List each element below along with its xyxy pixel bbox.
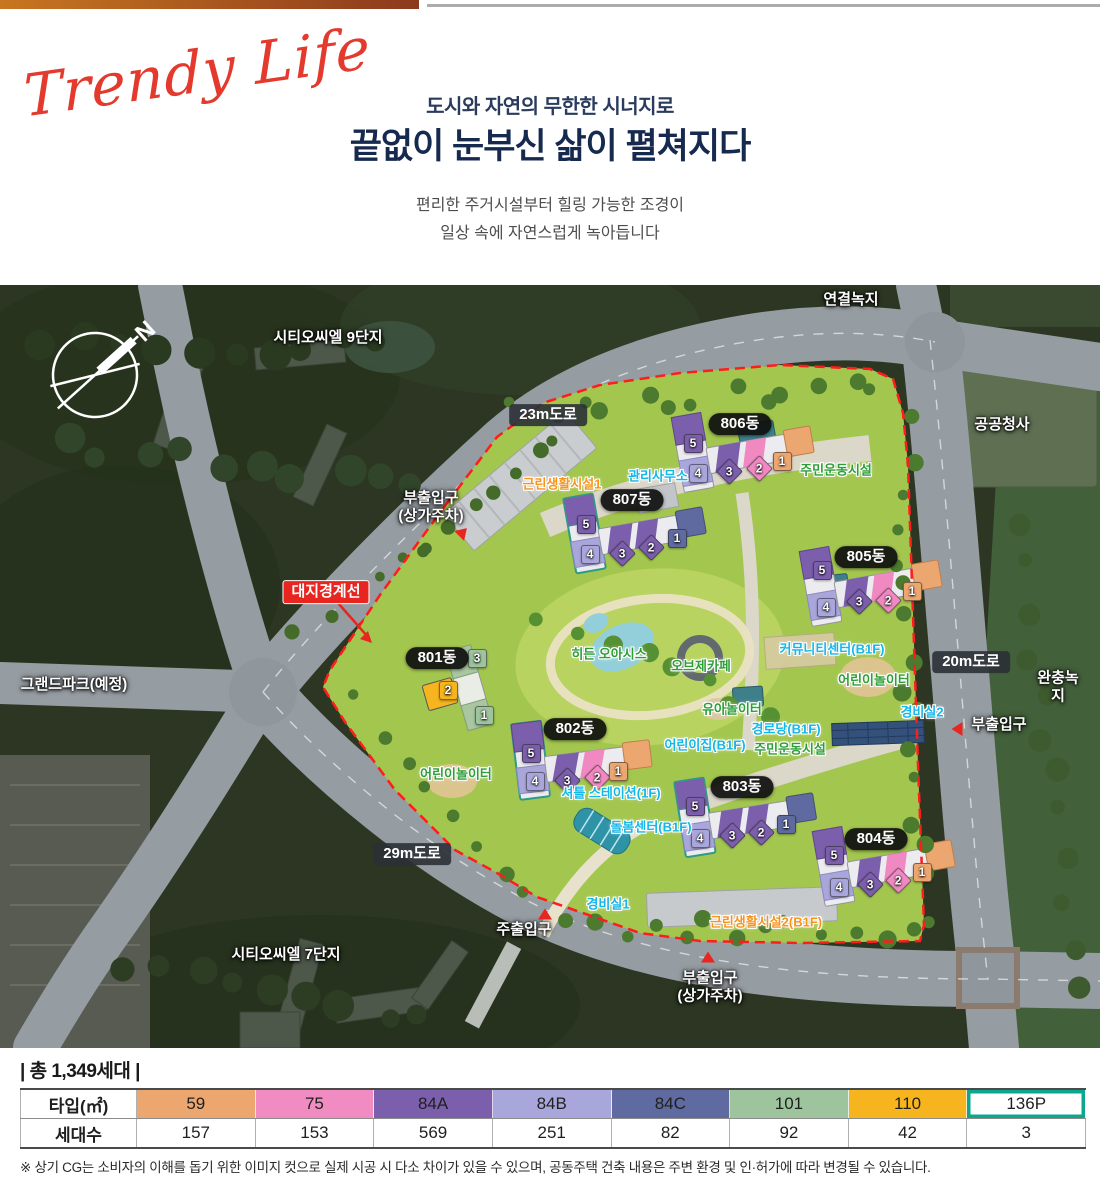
map-label-w: 시티오씨엘 9단지: [273, 329, 382, 347]
page: Trendy Life 도시와 자연의 무한한 시너지로 끝없이 눈부신 삶이 …: [0, 0, 1100, 1197]
map-label-w: 부출입구 (상가주차): [677, 969, 742, 1004]
unit-badge-number: 5: [583, 517, 590, 531]
unit-badge: 4: [691, 829, 710, 848]
header-description: 편리한 주거시설부터 힐링 가능한 조경이 일상 속에 자연스럽게 녹아듭니다: [0, 192, 1100, 248]
unit-badge: 4: [689, 464, 708, 483]
map-label-w: 완충녹지: [1037, 669, 1079, 704]
count-cell: 82: [612, 1119, 731, 1147]
unit-badge: 3: [719, 822, 746, 849]
entrance-arrow-icon: [701, 952, 715, 963]
count-cell: 157: [137, 1119, 256, 1147]
unit-badge-number: 3: [867, 877, 874, 891]
unit-badge: 2: [439, 681, 458, 700]
map-label-or: 근린생활시설1: [523, 476, 602, 491]
unit-type-table: 타입(㎡) 597584A84B84C101110136P 세대수 157153…: [20, 1088, 1086, 1149]
unit-badge: 2: [638, 534, 665, 561]
count-row: 세대수 1571535692518292423: [20, 1118, 1086, 1147]
unit-badge: 2: [748, 819, 775, 846]
accent-bar: [0, 0, 419, 9]
unit-badge: 5: [825, 846, 844, 865]
unit-badge-number: 5: [831, 848, 838, 862]
unit-badge-number: 2: [594, 770, 601, 784]
entrance-arrow-icon: [952, 722, 963, 736]
unit-badge: 3: [609, 540, 636, 567]
total-households: | 총 1,349세대 |: [20, 1056, 140, 1083]
map-label-w: 공공청사: [974, 416, 1029, 434]
map-label-cy: 어린이집(B1F): [664, 737, 745, 752]
map-label-cy: 경비실1: [586, 896, 629, 911]
unit-badge: 1: [777, 815, 796, 834]
page-title: 끝없이 눈부신 삶이 펼쳐지다: [0, 118, 1100, 169]
map-label-or: 근린생활시설2(B1F): [710, 914, 822, 929]
count-row-header: 세대수: [20, 1119, 137, 1147]
map-label-w: 부출입구 (상가주차): [398, 489, 463, 524]
unit-badge: 1: [668, 529, 687, 548]
unit-badge: 4: [830, 878, 849, 897]
unit-badge: 4: [817, 598, 836, 617]
unit-badge: 3: [716, 458, 743, 485]
map-label-cy: 경로당(B1F): [751, 721, 820, 736]
map-label-cy: 커뮤니티센터(B1F): [780, 641, 885, 656]
map-label-cy: 경비실2: [900, 704, 943, 719]
map-label-cy: 돌봄센터(B1F): [610, 819, 691, 834]
count-cell: 251: [493, 1119, 612, 1147]
count-cell: 569: [374, 1119, 493, 1147]
map-label-gr: 어린이놀이터: [838, 672, 910, 687]
unit-badge-number: 4: [697, 831, 704, 845]
unit-badge-number: 5: [692, 799, 699, 813]
map-label-w: 연결녹지: [823, 291, 878, 309]
type-cell: 110: [849, 1090, 968, 1118]
unit-badge-number: 1: [615, 764, 622, 778]
unit-badge: 3: [846, 588, 873, 615]
unit-badge-number: 3: [474, 651, 481, 665]
unit-badge-number: 3: [619, 546, 626, 560]
unit-badge-number: 2: [758, 825, 765, 839]
map-labels-layer: 연결녹지시티오씨엘 9단지공공청사완충녹지그랜드파크(예정)시티오씨엘 7단지부…: [0, 285, 1100, 1048]
site-plan-map: N 연결녹지시티오씨엘 9단지공공청사완충녹지그랜드파크(예정)시티오씨엘 7단…: [0, 285, 1100, 1048]
unit-badge: 3: [468, 649, 487, 668]
entrance-arrow-icon: [454, 523, 472, 541]
unit-badge: 1: [475, 706, 494, 725]
unit-badge: 2: [875, 587, 902, 614]
unit-badge: 2: [885, 867, 912, 894]
unit-badge-number: 3: [729, 828, 736, 842]
unit-badge: 4: [581, 545, 600, 564]
type-row: 타입(㎡) 597584A84B84C101110136P: [20, 1090, 1086, 1118]
unit-badge-number: 1: [919, 865, 926, 879]
unit-badge-number: 4: [836, 880, 843, 894]
unit-badge: 1: [609, 762, 628, 781]
count-cell: 92: [730, 1119, 849, 1147]
building-pill: 806동: [709, 413, 772, 435]
building-pill: 807동: [601, 489, 664, 511]
unit-badge: 1: [773, 452, 792, 471]
map-label-gr: 주민운동시설: [754, 741, 826, 756]
unit-badge-number: 1: [674, 531, 681, 545]
map-label-cy: 셔틀 스테이션(1F): [561, 785, 660, 800]
type-cell: 75: [256, 1090, 375, 1118]
type-cell: 136P: [967, 1090, 1086, 1118]
type-cell: 101: [730, 1090, 849, 1118]
map-label-cy: 관리사무소: [628, 468, 688, 483]
count-cell: 42: [849, 1119, 968, 1147]
map-label-red: 대지경계선: [282, 580, 369, 604]
building-pill: 801동: [406, 647, 469, 669]
unit-badge-number: 2: [445, 683, 452, 697]
unit-badge: 1: [903, 582, 922, 601]
map-label-gr: 어린이놀이터: [420, 766, 492, 781]
unit-badge: 5: [577, 515, 596, 534]
unit-badge-number: 4: [532, 774, 539, 788]
unit-badge-number: 3: [726, 464, 733, 478]
unit-badge-number: 1: [481, 708, 488, 722]
building-pill: 802동: [544, 718, 607, 740]
unit-badge: 5: [686, 797, 705, 816]
unit-badge: 5: [684, 434, 703, 453]
map-label-w: 그랜드파크(예정): [21, 676, 128, 694]
header-subtitle: 도시와 자연의 무한한 시너지로: [0, 90, 1100, 119]
unit-badge-number: 1: [783, 817, 790, 831]
unit-badge-number: 2: [648, 540, 655, 554]
type-cell: 84A: [374, 1090, 493, 1118]
unit-badge-number: 2: [895, 873, 902, 887]
type-cell: 59: [137, 1090, 256, 1118]
disclaimer-text: ※ 상기 CG는 소비자의 이해를 돕기 위한 이미지 컷으로 실제 시공 시 …: [20, 1156, 931, 1176]
building-pill: 805동: [835, 546, 898, 568]
header: Trendy Life 도시와 자연의 무한한 시너지로 끝없이 눈부신 삶이 …: [0, 0, 1100, 285]
unit-badge: 3: [857, 871, 884, 898]
map-label-gr: 오브제카페: [671, 658, 731, 673]
map-label-road: 20m도로: [932, 651, 1010, 673]
map-label-w: 시티오씨엘 7단지: [231, 946, 340, 964]
divider-line: [427, 4, 1100, 7]
type-cell: 84C: [612, 1090, 731, 1118]
map-label-w: 주출입구: [496, 921, 551, 939]
type-cell: 84B: [493, 1090, 612, 1118]
unit-badge-number: 2: [756, 461, 763, 475]
map-label-gr: 히든 오아시스: [571, 646, 646, 661]
unit-badge: 5: [522, 744, 541, 763]
unit-badge-number: 2: [885, 593, 892, 607]
map-label-gr: 유아놀이터: [702, 701, 762, 716]
unit-badge-number: 3: [856, 594, 863, 608]
entrance-arrow-icon: [538, 909, 552, 920]
unit-badge-number: 5: [528, 746, 535, 760]
unit-badge: 4: [526, 772, 545, 791]
unit-badge: 5: [813, 561, 832, 580]
count-cell: 153: [256, 1119, 375, 1147]
unit-badge-number: 1: [779, 454, 786, 468]
building-pill: 803동: [711, 776, 774, 798]
unit-badge-number: 4: [823, 600, 830, 614]
unit-badge-number: 1: [909, 584, 916, 598]
unit-badge: 2: [746, 455, 773, 482]
map-label-w: 부출입구: [971, 716, 1026, 734]
unit-badge-number: 4: [695, 466, 702, 480]
count-cell: 3: [967, 1119, 1086, 1147]
unit-badge: 1: [913, 863, 932, 882]
map-label-gr: 주민운동시설: [800, 462, 872, 477]
unit-badge-number: 5: [819, 563, 826, 577]
building-pill: 804동: [845, 828, 908, 850]
map-label-road: 29m도로: [373, 843, 451, 865]
unit-summary-section: | 총 1,349세대 | 타입(㎡) 597584A84B84C1011101…: [0, 1048, 1100, 1197]
unit-badge-number: 5: [690, 436, 697, 450]
type-row-header: 타입(㎡): [20, 1090, 137, 1118]
unit-badge-number: 4: [587, 547, 594, 561]
map-label-road: 23m도로: [509, 404, 587, 426]
